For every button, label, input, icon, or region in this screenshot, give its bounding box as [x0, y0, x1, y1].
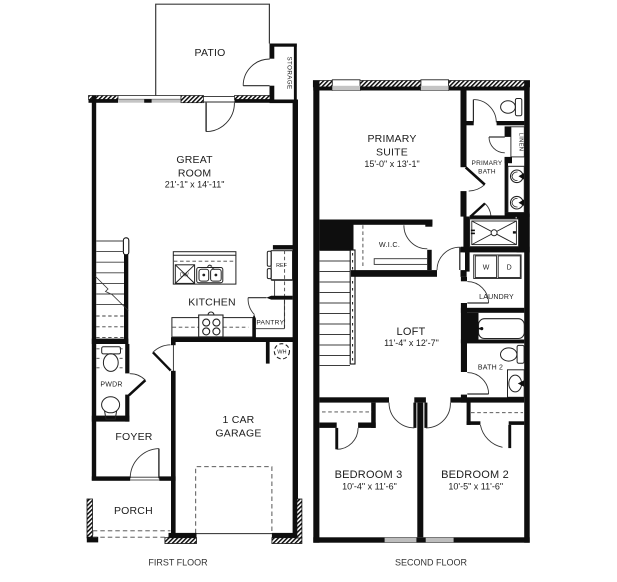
svg-text:DW: DW — [180, 272, 189, 278]
svg-text:LINEN: LINEN — [518, 133, 524, 152]
svg-text:BEDROOM 3: BEDROOM 3 — [335, 469, 403, 481]
svg-text:PORCH: PORCH — [114, 505, 153, 517]
svg-text:21'-1" x 14'-11": 21'-1" x 14'-11" — [165, 179, 225, 189]
svg-text:PWDR: PWDR — [100, 382, 122, 389]
svg-text:FOYER: FOYER — [115, 431, 152, 443]
svg-text:ROOM: ROOM — [178, 168, 211, 180]
svg-text:PANTRY: PANTRY — [256, 320, 284, 327]
svg-text:PATIO: PATIO — [195, 47, 226, 59]
svg-text:W.I.C.: W.I.C. — [379, 240, 400, 249]
svg-text:11'-4" x 12'-7": 11'-4" x 12'-7" — [384, 338, 439, 348]
svg-text:D: D — [507, 265, 512, 272]
svg-text:10'-4" x 11'-6": 10'-4" x 11'-6" — [342, 481, 397, 491]
svg-text:GARAGE: GARAGE — [215, 427, 261, 439]
svg-text:SUITE: SUITE — [376, 147, 408, 159]
svg-text:1 CAR: 1 CAR — [223, 414, 255, 426]
svg-text:BEDROOM 2: BEDROOM 2 — [441, 469, 509, 481]
svg-text:SECOND FLOOR: SECOND FLOOR — [395, 558, 468, 568]
svg-text:PRIMARY: PRIMARY — [367, 133, 416, 145]
svg-text:15'-0" x 13'-1": 15'-0" x 13'-1" — [364, 159, 419, 169]
svg-text:W: W — [483, 265, 490, 272]
svg-text:10'-5" x 11'-6": 10'-5" x 11'-6" — [448, 481, 503, 491]
svg-text:STORAGE: STORAGE — [286, 57, 293, 90]
svg-text:PRIMARY: PRIMARY — [472, 160, 503, 167]
svg-text:WH: WH — [277, 350, 286, 356]
svg-text:BATH: BATH — [478, 168, 496, 175]
svg-text:GREAT: GREAT — [176, 154, 213, 166]
svg-text:KITCHEN: KITCHEN — [188, 297, 236, 309]
svg-text:REF: REF — [276, 263, 287, 269]
svg-text:LOFT: LOFT — [397, 326, 426, 338]
svg-text:FIRST FLOOR: FIRST FLOOR — [148, 558, 208, 568]
svg-text:LAUNDRY: LAUNDRY — [479, 294, 514, 301]
svg-text:BATH 2: BATH 2 — [478, 365, 503, 372]
